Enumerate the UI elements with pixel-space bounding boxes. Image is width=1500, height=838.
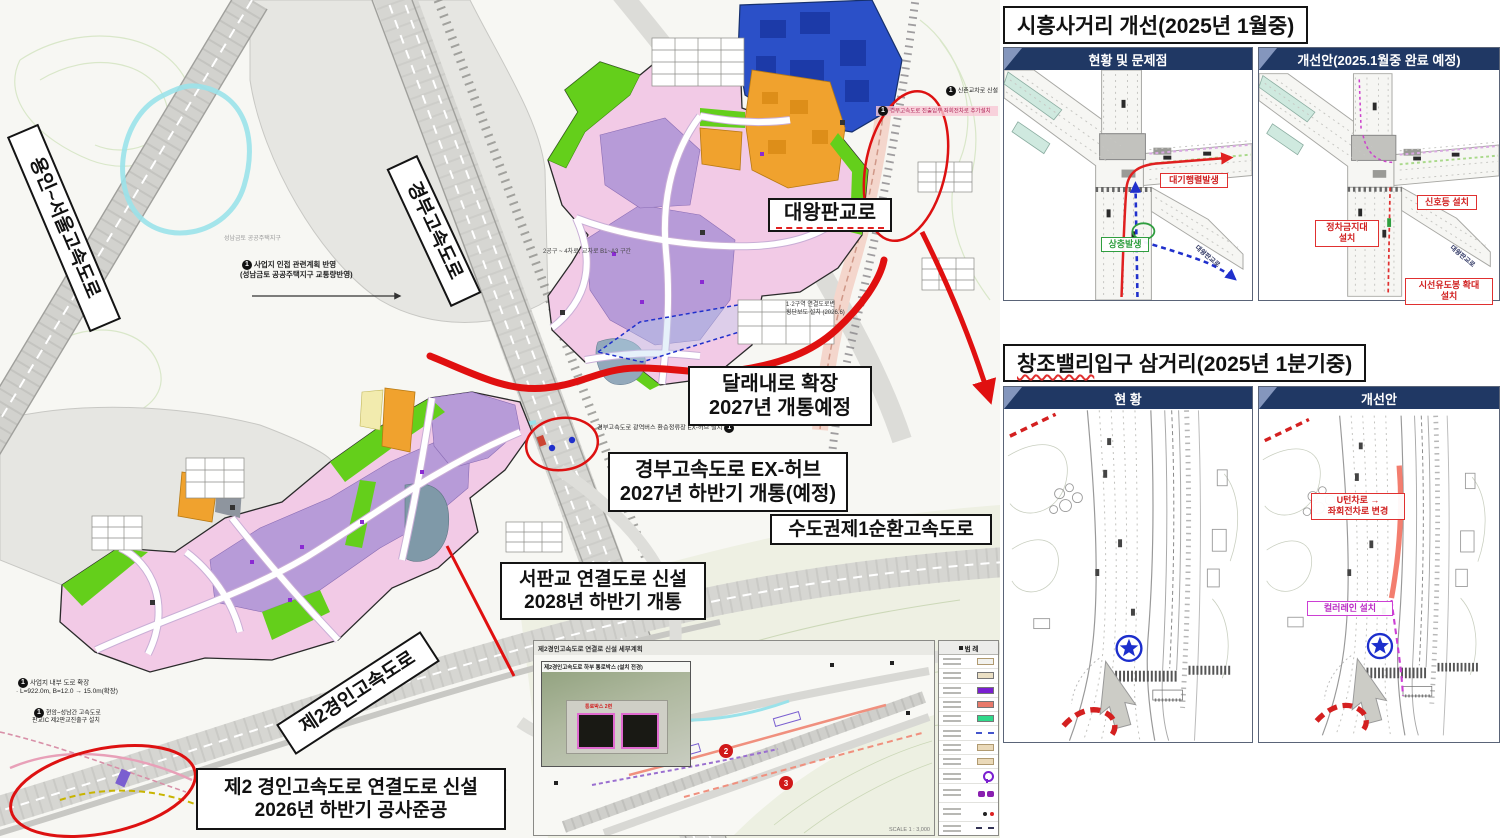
legend-swatch-icon <box>977 758 994 765</box>
siheung-current-header: 현황 및 문제점 <box>1004 48 1252 70</box>
tunnel-opening-left <box>577 713 615 749</box>
label-uturn-change: U턴차로 → 좌회전차로 변경 <box>1311 493 1405 520</box>
note-crosswalk: 1·2구역 연결도로변 횡단보도 설치 (2026.6) <box>786 302 882 317</box>
changjo-current-map <box>1004 409 1252 742</box>
right-column: 시흥사거리 개선(2025년 1월중) 현황 및 문제점 <box>1003 0 1500 838</box>
legend-row <box>939 755 998 769</box>
label-conflict: 상충발생 <box>1101 237 1149 252</box>
svg-text:2: 2 <box>724 747 729 756</box>
note-geumto: 성남금토 공공주택지구 <box>224 236 344 244</box>
siheung-improved-map: 신호등 설치정차금지대 설치시선유도봉 확대 설치대왕판교로 <box>1259 70 1499 300</box>
changjo-current-panel: 현 황 <box>1003 386 1253 743</box>
screenshot-root: 1사업지 인접 관련계획 반영 (성남금토 공공주택지구 교통량반영)1신촌교차… <box>0 0 1500 838</box>
legend-row <box>939 822 998 835</box>
road-label-daewang-pangyo: 대왕판교로 <box>768 198 892 232</box>
legend-row <box>939 669 998 683</box>
numbered-bullet-icon: 1 <box>946 86 956 96</box>
changjo-improved-panel: 개선안 <box>1258 386 1500 743</box>
legend-row <box>939 784 998 803</box>
master-plan-map: 1사업지 인접 관련계획 반영 (성남금토 공공주택지구 교통량반영)1신촌교차… <box>0 0 1000 838</box>
legend-swatch-icon <box>977 744 994 751</box>
numbered-bullet-icon: 1 <box>878 106 888 116</box>
inset-detail-panel: 제2경인고속도로 연결로 신설 세부계획 2 3 <box>533 640 935 836</box>
legend-row <box>939 769 998 783</box>
legend-swatch-icon <box>980 803 994 821</box>
numbered-bullet-icon: 1 <box>34 708 44 718</box>
note-leftturn: 1경부고속도로 진출입부 좌회전차로 추가설치 <box>876 106 998 116</box>
note-sinchon: 1신촌교차로 신설 <box>924 86 998 96</box>
siheung-current-panel: 현황 및 문제점 <box>1003 47 1253 301</box>
label-color-lane: 컬러레인 설치 <box>1307 601 1393 616</box>
siheung-improved-panel: 개선안(2025.1월중 완료 예정) <box>1258 47 1500 301</box>
legend-swatch-icon <box>976 784 994 802</box>
tunnel-opening-right <box>621 713 659 749</box>
changjo-section-title: 창조밸리 입구 삼거리(2025년 1분기중) <box>1003 344 1366 382</box>
tunnel-structure: 통로박스 2련 <box>566 700 668 754</box>
legend-swatch-icon <box>976 827 994 829</box>
numbered-bullet-icon: 1 <box>18 678 28 688</box>
legend-swatch-icon <box>977 715 994 722</box>
note-inner-road: 1사업지 내부 도로 확장 · L=922.0m, B=12.0 → 15.0m… <box>16 678 171 696</box>
legend-row <box>939 741 998 755</box>
numbered-bullet-icon: 1 <box>242 260 252 270</box>
changjo-current-header: 현 황 <box>1004 387 1252 409</box>
label-delineator: 시선유도봉 확대 설치 <box>1405 278 1493 305</box>
label-no-stopping: 정차금지대 설치 <box>1315 220 1379 247</box>
legend-swatch-icon <box>977 687 994 694</box>
label-queue: 대기행렬발생 <box>1160 173 1228 188</box>
legend-row <box>939 698 998 712</box>
callout-je2-connect: 제2 경인고속도로 연결도로 신설 2026년 하반기 공사준공 <box>196 768 506 830</box>
siheung-improved-header: 개선안(2025.1월중 완료 예정) <box>1259 48 1499 70</box>
legend-rows <box>939 655 998 835</box>
changjo-improved-map: U턴차로 → 좌회전차로 변경컬러레인 설치 <box>1259 409 1499 742</box>
siheung-section-title: 시흥사거리 개선(2025년 1월중) <box>1003 6 1308 44</box>
legend-swatch-icon <box>983 771 994 782</box>
tunnel-photo: 제2경인고속도로 하부 통로박스 (설치 전경) 통로박스 2련 <box>541 661 691 767</box>
note-adjacent-plan: 1사업지 인접 관련계획 반영 (성남금토 공공주택지구 교통량반영) <box>240 260 415 279</box>
inset-scale-text: SCALE 1 : 3,000 <box>889 827 930 833</box>
siheung-current-map: 대기행렬발생상충발생대왕판교로 <box>1004 70 1252 300</box>
legend-row <box>939 684 998 698</box>
legend-swatch-icon <box>976 732 994 734</box>
inset-title: 제2경인고속도로 연결로 신설 세부계획 <box>534 641 934 656</box>
callout-ex-hub: 경부고속도로 EX-허브 2027년 하반기 개통(예정) <box>608 452 848 512</box>
changjo-improved-header: 개선안 <box>1259 387 1499 409</box>
legend-row <box>939 712 998 726</box>
legend-swatch-icon <box>977 701 994 708</box>
legend-title: 범 례 <box>939 641 998 655</box>
legend-row <box>939 726 998 740</box>
legend-panel: 범 례 <box>938 640 999 836</box>
tunnel-photo-caption: 제2경인고속도로 하부 통로박스 (설치 전경) <box>542 662 690 672</box>
road-label-sunhwan: 수도권제1순환고속도로 <box>770 514 992 545</box>
note-pangyo-ic: 1현암~성남간 고속도로 판교IC 제2판교진출구 설치 <box>32 708 164 726</box>
legend-row <box>939 655 998 669</box>
svg-text:3: 3 <box>784 779 789 788</box>
note-section: 2공구 ~ 4차로, 교차로 B1~A3 구간 <box>543 249 675 257</box>
legend-swatch-icon <box>977 672 994 679</box>
callout-dallaenae: 달래내로 확장 2027년 개통예정 <box>688 366 872 426</box>
callout-seopangyo: 서판교 연결도로 신설 2028년 하반기 개통 <box>500 562 706 620</box>
legend-row <box>939 803 998 822</box>
legend-swatch-icon <box>977 658 994 665</box>
label-signal: 신호등 설치 <box>1417 195 1477 210</box>
